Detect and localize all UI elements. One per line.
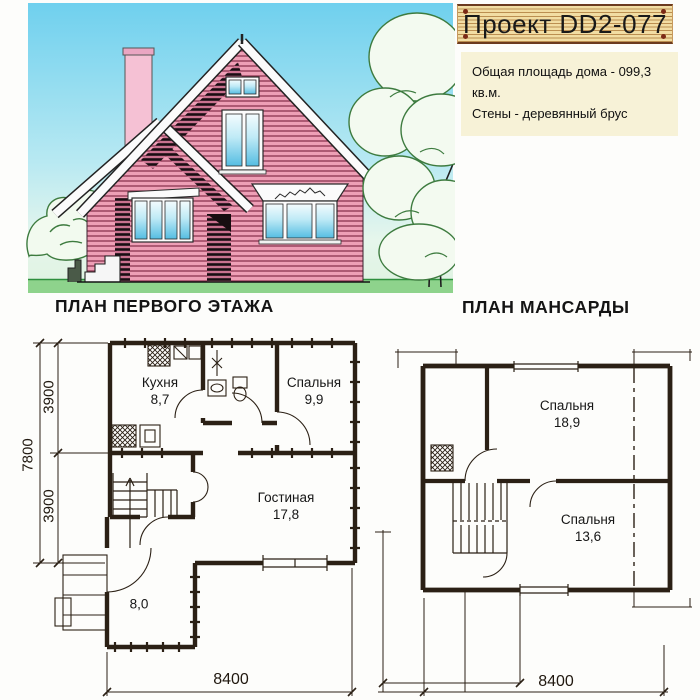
project-sheet: Проект DD2-077 Общая площадь дома - 099,… — [0, 0, 700, 700]
house-elevation-illustration — [25, 2, 455, 294]
fixtures — [112, 345, 247, 447]
dim-8400-attic: 8400 — [538, 673, 574, 691]
title-plate: Проект DD2-077 — [457, 4, 673, 44]
info-panel: Общая площадь дома - 099,3 кв.м. Стены -… — [461, 52, 678, 136]
room-label-hall: 8,0 — [130, 596, 149, 613]
nail-icon — [661, 34, 666, 39]
dim-3900-upper: 3900 — [41, 380, 58, 413]
stairs-first-floor — [113, 473, 177, 548]
project-title: Проект DD2-077 — [463, 9, 667, 40]
room-label-attic-bedroom2: Спальня13,6 — [561, 511, 615, 545]
attic-plan-drawing — [375, 349, 692, 696]
nail-icon — [661, 9, 666, 14]
info-walls: Стены - деревянный брус — [472, 103, 678, 124]
room-label-kitchen: Кухня8,7 — [142, 374, 178, 408]
floor-plans-drawing — [0, 320, 700, 700]
left-window — [128, 188, 199, 242]
attic-plan-title: ПЛАН МАНСАРДЫ — [462, 297, 630, 318]
dim-7800: 7800 — [20, 438, 37, 471]
room-label-living: Гостиная17,8 — [258, 489, 315, 523]
stairs-attic — [453, 483, 507, 553]
room-label-attic-bedroom1: Спальня18,9 — [540, 397, 594, 431]
entrance-porch — [55, 555, 107, 630]
room-label-bedroom1: Спальня9,9 — [287, 374, 341, 408]
attic-window — [226, 77, 259, 97]
nail-icon — [463, 9, 468, 14]
dim-8400-first-floor: 8400 — [213, 671, 249, 689]
info-total-area: Общая площадь дома - 099,3 кв.м. — [472, 61, 678, 103]
dim-3900-lower: 3900 — [41, 489, 58, 522]
first-floor-plan-title: ПЛАН ПЕРВОГО ЭТАЖА — [55, 296, 274, 317]
nail-icon — [463, 34, 468, 39]
right-window — [252, 184, 348, 244]
upper-window — [219, 110, 266, 174]
